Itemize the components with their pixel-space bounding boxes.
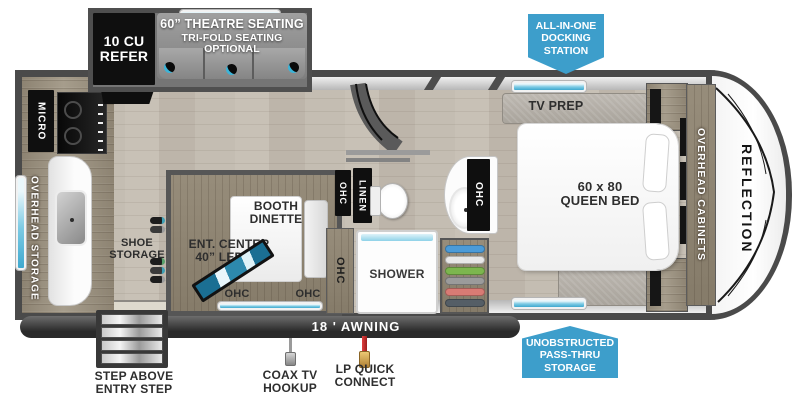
booth-dinette-label: BOOTH DINETTE bbox=[236, 200, 316, 226]
wardrobe-door bbox=[650, 266, 661, 306]
queen-bed: 60 x 80 QUEEN BED bbox=[518, 124, 678, 270]
shoe-icon bbox=[150, 267, 165, 274]
kitchen-sink bbox=[55, 190, 87, 246]
theatre-seating-sublabel: TRI-FOLD SEATING OPTIONAL bbox=[155, 33, 309, 56]
bath-door-arc bbox=[348, 82, 404, 154]
coax-hookup-label: COAX TV HOOKUP bbox=[252, 369, 328, 395]
cooktop-stove bbox=[57, 92, 107, 154]
ohc-vanity-label: OHC bbox=[467, 159, 490, 231]
docking-station-badge: ALL-IN-ONE DOCKING STATION bbox=[528, 14, 604, 74]
hanger-icon bbox=[445, 256, 485, 264]
bedroom-window bbox=[512, 81, 586, 92]
toilet-tank bbox=[370, 186, 381, 216]
lp-connect-label: LP QUICK CONNECT bbox=[326, 363, 404, 389]
sink-drain bbox=[70, 218, 74, 222]
door-track bbox=[346, 158, 410, 162]
shower-glass bbox=[361, 234, 433, 241]
refrigerator: 10 CU REFER bbox=[93, 13, 155, 85]
stove-knobs bbox=[98, 97, 103, 151]
rv-floorplan: REFLECTION MICRO OVERHEAD STORAGE 10 CU … bbox=[0, 0, 800, 400]
shower-label: SHOWER bbox=[358, 268, 436, 281]
awning-bar bbox=[20, 316, 520, 338]
hanger-icon bbox=[445, 245, 485, 253]
entry-steps bbox=[96, 310, 168, 368]
awning-label: 18 ' AWNING bbox=[286, 320, 426, 334]
ohc-pantry-label: OHC bbox=[326, 228, 354, 314]
queen-bed-label: 60 x 80 QUEEN BED bbox=[538, 180, 662, 208]
overhead-cabinets-label: OVERHEAD CABINETS bbox=[686, 84, 716, 306]
step-tread bbox=[101, 327, 163, 338]
reflection-brand: REFLECTION bbox=[736, 125, 758, 273]
burner-icon bbox=[64, 101, 82, 119]
shoe-icon bbox=[150, 258, 165, 265]
wardrobe-hangers bbox=[440, 238, 489, 314]
shoe-icon bbox=[150, 217, 165, 224]
passthru-badge: UNOBSTRUCTED PASS-THRU STORAGE bbox=[522, 326, 618, 378]
hanger-icon bbox=[445, 299, 485, 307]
overhead-storage-label: OVERHEAD STORAGE bbox=[24, 166, 44, 310]
entry-step-label: STEP ABOVE ENTRY STEP bbox=[82, 370, 186, 396]
ohc-dinette-left-label: OHC bbox=[217, 289, 257, 301]
ohc-hall-label: OHC bbox=[335, 170, 351, 216]
wardrobe-door bbox=[650, 89, 661, 126]
bedroom-window bbox=[512, 298, 586, 309]
ohc-dinette-right-label: OHC bbox=[288, 289, 328, 301]
hanger-icon bbox=[445, 288, 485, 296]
theatre-seating-label: 60” THEATRE SEATING bbox=[158, 18, 306, 32]
hanger-icon bbox=[445, 277, 485, 285]
dinette-window bbox=[218, 302, 322, 310]
shoe-icon bbox=[150, 276, 165, 283]
shoe-icon bbox=[150, 226, 165, 233]
step-tread bbox=[101, 353, 163, 364]
step-tread bbox=[101, 340, 163, 351]
microwave: MICRO bbox=[28, 90, 54, 152]
tv-prep-label: TV PREP bbox=[516, 100, 596, 114]
shower-stall: SHOWER bbox=[356, 230, 438, 314]
hanger-icon bbox=[445, 267, 485, 275]
pillow bbox=[642, 201, 670, 261]
toilet bbox=[377, 183, 408, 219]
step-tread bbox=[101, 314, 163, 325]
burner-icon bbox=[64, 127, 82, 145]
coax-connector-icon bbox=[285, 352, 296, 366]
door-track bbox=[346, 150, 430, 155]
